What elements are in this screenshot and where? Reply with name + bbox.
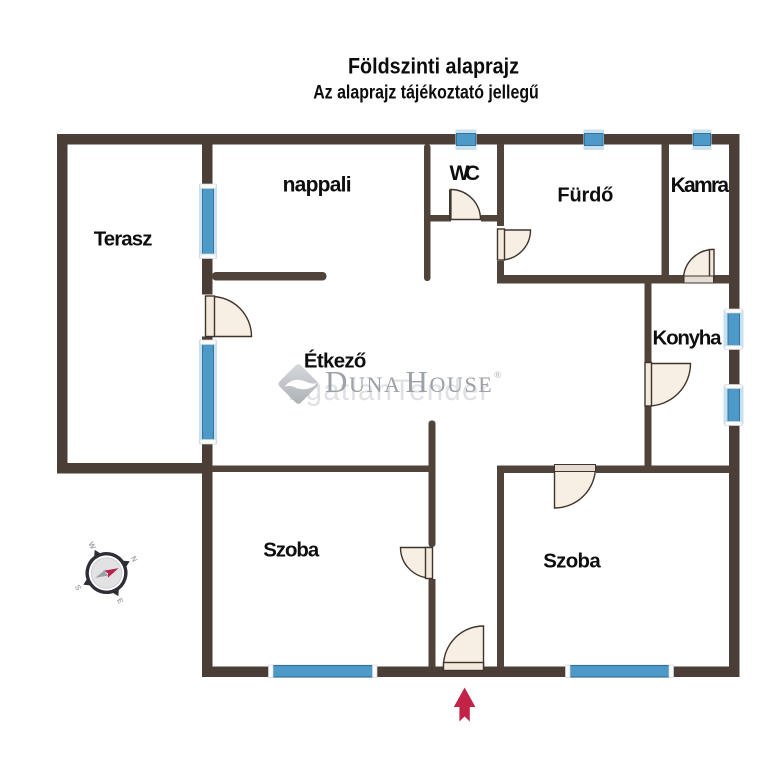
svg-text:WC: WC xyxy=(450,162,481,185)
svg-text:Szoba: Szoba xyxy=(263,540,320,562)
svg-text:Szoba: Szoba xyxy=(543,551,601,573)
svg-text:Földszinti alaprajz: Földszinti alaprajz xyxy=(348,53,519,78)
svg-text:Konyha: Konyha xyxy=(653,326,723,349)
svg-text:Étkező: Étkező xyxy=(304,349,367,372)
svg-text:Az alaprajz tájékoztató jelleg: Az alaprajz tájékoztató jellegű xyxy=(313,83,539,104)
svg-text:Fürdő: Fürdő xyxy=(557,184,613,206)
svg-text:Terasz: Terasz xyxy=(94,229,153,251)
svg-text:®: ® xyxy=(494,370,501,381)
svg-text:Kamra: Kamra xyxy=(671,174,730,197)
svg-text:nappali: nappali xyxy=(283,174,352,197)
